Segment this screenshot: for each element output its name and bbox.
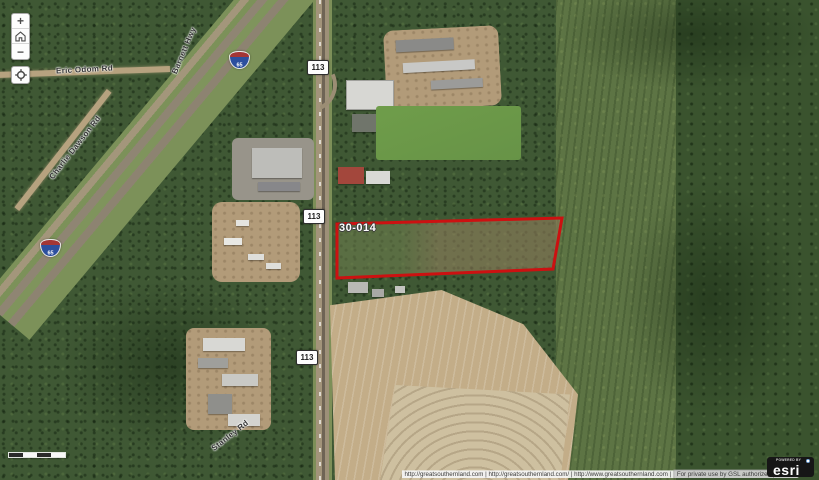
- locate-button[interactable]: [11, 66, 30, 84]
- route-marker-113: 113: [307, 60, 329, 75]
- building: [403, 59, 475, 73]
- trailer: [266, 263, 281, 269]
- forest-shade-patch: [620, 180, 800, 420]
- attribution-bar: http://greatsouthernland.com | http://gr…: [402, 466, 819, 478]
- house: [372, 289, 384, 297]
- zoom-control-group: + −: [11, 13, 30, 60]
- trailer: [236, 220, 249, 226]
- building: [208, 394, 232, 414]
- attribution-links: http://greatsouthernland.com | http://gr…: [402, 470, 674, 478]
- truckstop-parking: [232, 138, 314, 200]
- building: [431, 78, 483, 90]
- scale-bar: [8, 452, 66, 458]
- home-icon: [15, 31, 26, 42]
- dirt-yard: [212, 202, 300, 282]
- map-canvas[interactable]: 30-014 Eric Odom Rd Barnett Hwy Charlie …: [0, 0, 819, 480]
- esri-globe-icon: [806, 459, 810, 463]
- building: [203, 338, 245, 351]
- building: [222, 374, 258, 386]
- zoom-in-button[interactable]: +: [12, 14, 29, 29]
- building: [198, 358, 228, 368]
- home-button[interactable]: [12, 29, 29, 44]
- trailer: [248, 254, 264, 260]
- esri-wordmark: esri: [773, 462, 800, 478]
- forest-shade-patch: [560, 0, 819, 90]
- locate-icon: [15, 69, 27, 81]
- route-marker-113: 113: [296, 350, 318, 365]
- lumberyard-clearing: [383, 25, 502, 111]
- house: [395, 286, 405, 293]
- plus-icon: +: [17, 14, 24, 28]
- minus-icon: −: [17, 45, 24, 59]
- grass-field: [376, 106, 521, 160]
- esri-logo-badge[interactable]: POWERED BY esri: [767, 457, 814, 477]
- red-roof-building: [338, 167, 364, 184]
- truckstop-building: [252, 148, 302, 178]
- parcel-label: 30-014: [339, 222, 376, 234]
- house: [348, 282, 368, 293]
- trailer: [224, 238, 242, 245]
- building: [395, 37, 454, 52]
- fuel-pumps: [258, 182, 300, 191]
- fuel-canopy: [366, 171, 390, 184]
- route-marker-113: 113: [303, 209, 325, 224]
- industrial-pad: [186, 328, 271, 430]
- zoom-out-button[interactable]: −: [12, 44, 29, 59]
